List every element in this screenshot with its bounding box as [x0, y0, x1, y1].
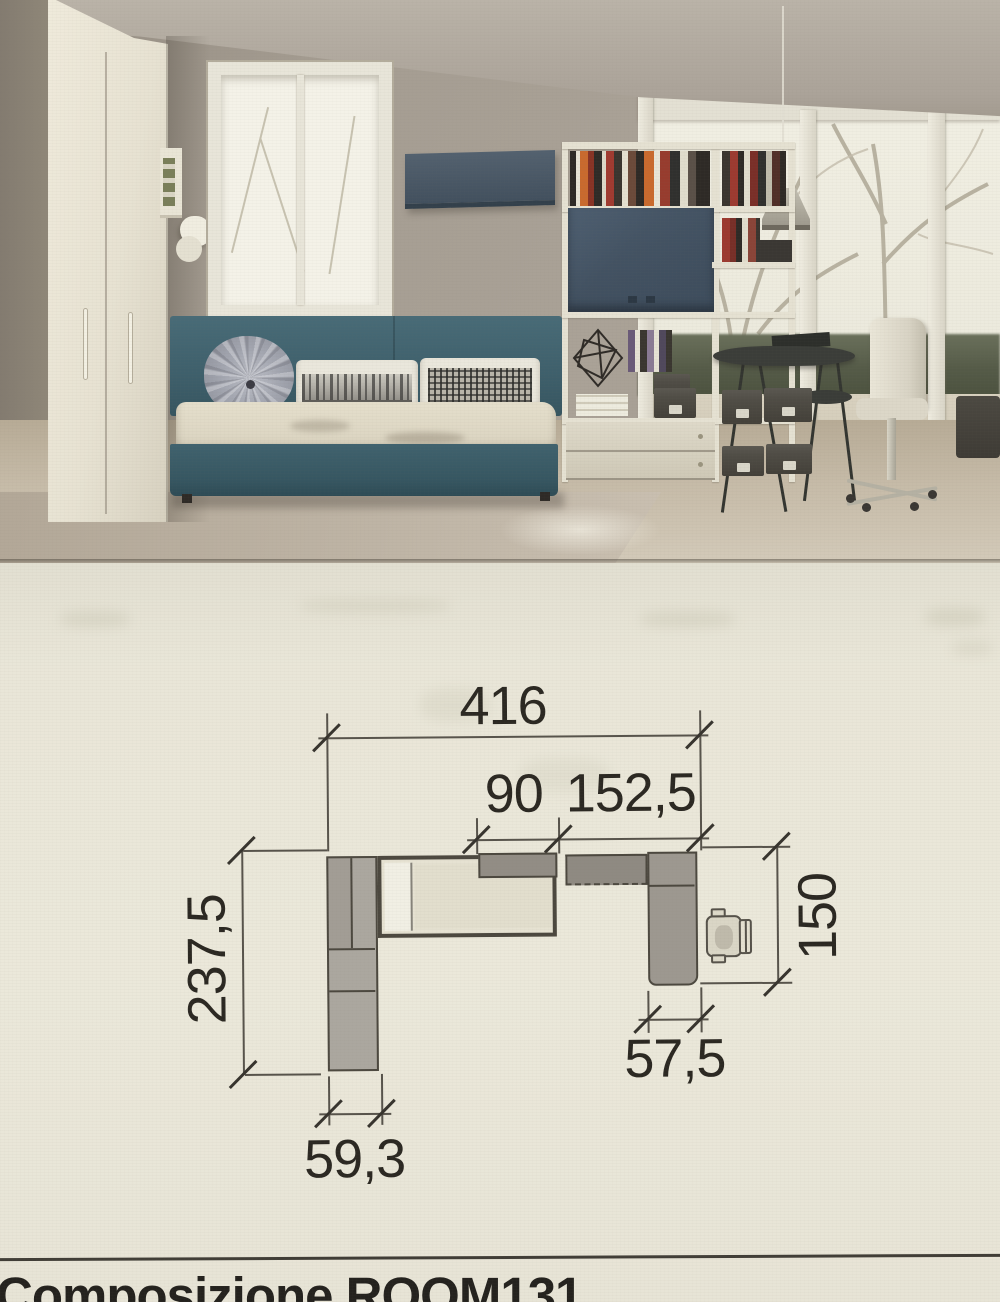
- dim-line-90-152: [467, 837, 709, 840]
- plan-wall-shelf-90: [478, 853, 557, 879]
- plan-chair-back: [739, 919, 752, 954]
- dim-label-150: 150: [787, 836, 848, 996]
- dim-line-237: [241, 850, 244, 1075]
- dim-line-416: [318, 734, 708, 739]
- plan-chair-seat: [706, 915, 742, 957]
- ext-line: [243, 849, 327, 851]
- plan-chair-arm: [711, 954, 726, 963]
- ext-line: [381, 1074, 383, 1125]
- catalog-page: 416 90 152,5 237,5 150: [0, 0, 1000, 1302]
- plan-bed-pillow: [384, 863, 413, 931]
- floor-plan: 416 90 152,5 237,5 150: [0, 0, 1000, 1302]
- dim-label-59-3: 59,3: [289, 1129, 419, 1190]
- plan-wall-shelf-152: [565, 854, 647, 886]
- composition-title: Composizione ROOM131: [0, 1266, 996, 1302]
- plan-desk-column: [647, 851, 698, 985]
- ext-line: [647, 991, 649, 1033]
- dim-label-152-5: 152,5: [561, 762, 701, 823]
- dim-line-150: [776, 846, 779, 983]
- plan-chair-arm: [711, 908, 726, 917]
- dim-label-416: 416: [443, 675, 563, 736]
- dim-label-237-5: 237,5: [176, 879, 237, 1039]
- ext-line: [328, 1076, 330, 1125]
- dim-label-90: 90: [479, 764, 549, 825]
- plan-wardrobe-column: [326, 856, 379, 1071]
- ext-line: [700, 987, 702, 1032]
- dim-label-57-5: 57,5: [610, 1028, 740, 1089]
- ext-line: [245, 1073, 321, 1075]
